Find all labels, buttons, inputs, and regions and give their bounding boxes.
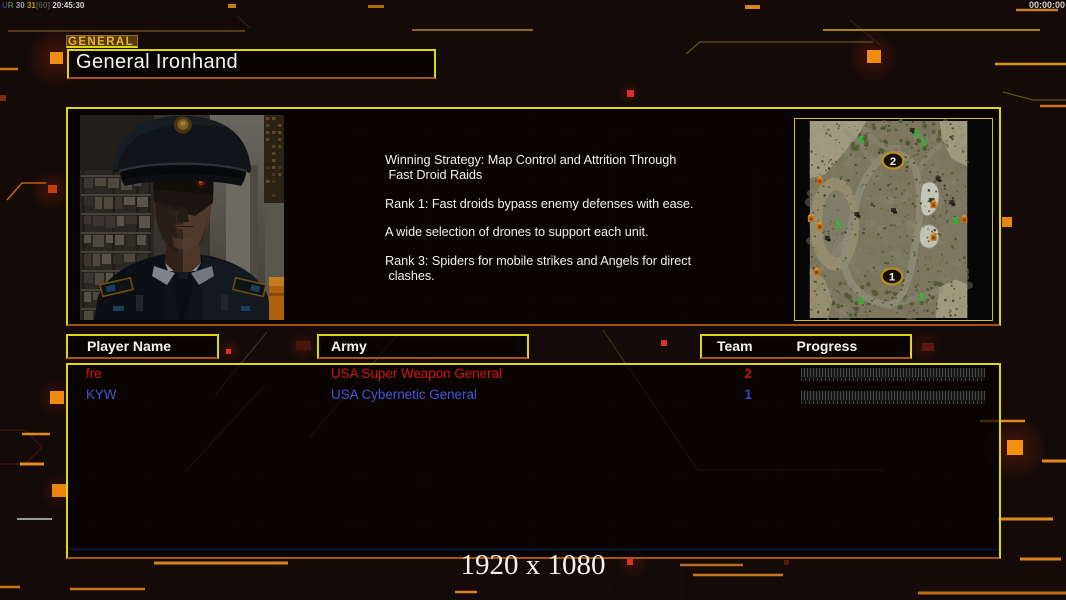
svg-text:1: 1	[889, 272, 896, 284]
svg-text:2: 2	[890, 156, 896, 168]
